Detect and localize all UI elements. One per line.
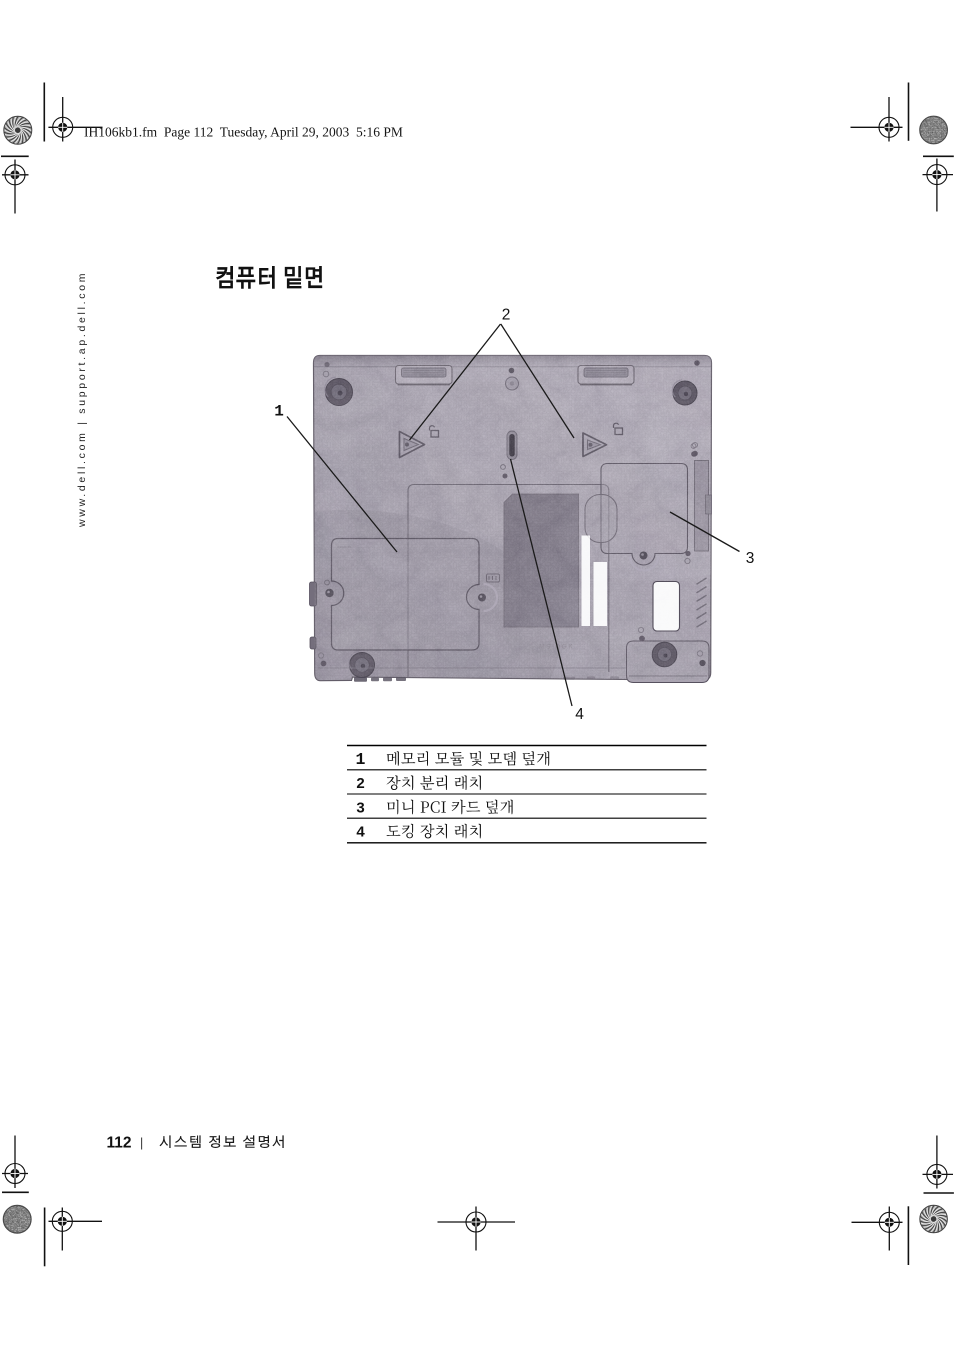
svg-text:www.dell.com | support.ap.dell: www.dell.com | support.ap.dell.com [76, 271, 88, 528]
svg-text:4: 4 [356, 824, 365, 841]
svg-text:3: 3 [746, 550, 755, 567]
svg-text:IH106kb1.fm Page 112 Tuesday: IH106kb1.fm Page 112 Tuesday, April 29, … [84, 124, 403, 139]
svg-text:1: 1 [274, 403, 284, 421]
svg-text:|: | [140, 1136, 143, 1150]
svg-text:1: 1 [356, 750, 366, 769]
svg-text:112: 112 [107, 1135, 132, 1152]
svg-text:2: 2 [356, 775, 364, 792]
svg-text:2: 2 [502, 307, 511, 324]
svg-text:3: 3 [356, 799, 364, 816]
svg-text:4: 4 [575, 706, 584, 723]
